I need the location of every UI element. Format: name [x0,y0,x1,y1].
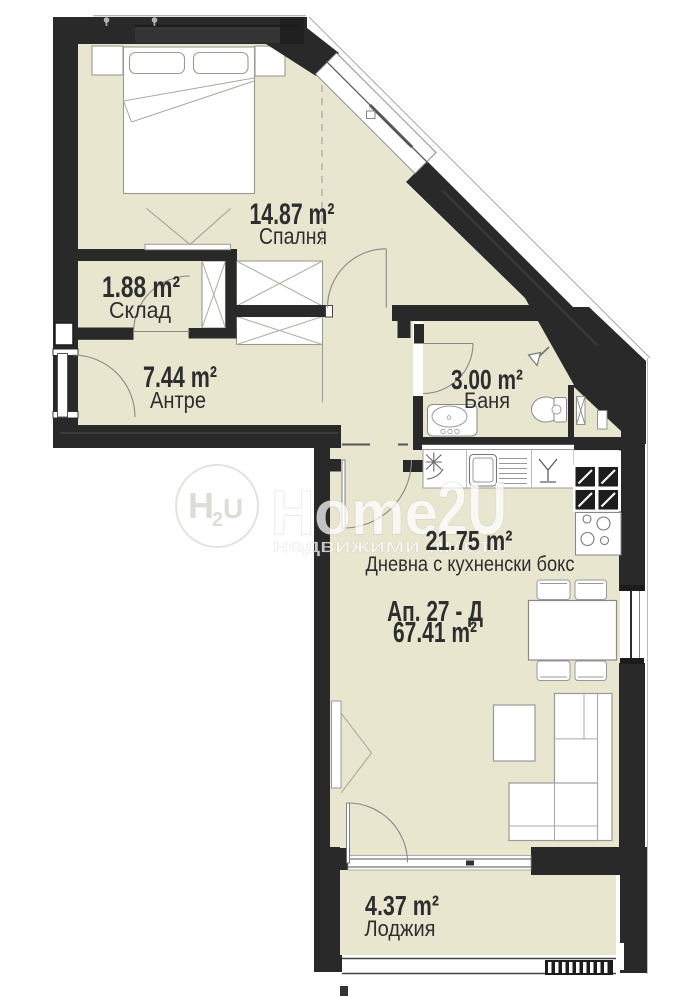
svg-text:Антре: Антре [150,387,206,413]
svg-text:Баня: Баня [464,388,510,413]
svg-text:Лоджия: Лоджия [365,916,436,941]
svg-text:21.75 m²: 21.75 m² [426,525,513,556]
svg-text:67.41 m²: 67.41 m² [393,617,477,649]
svg-text:Дневна с кухненски бокс: Дневна с кухненски бокс [366,553,575,576]
svg-text:2: 2 [212,509,223,531]
svg-text:Склад: Склад [109,297,172,323]
svg-text:Спалня: Спалня [259,223,327,249]
svg-text:U: U [223,493,243,524]
svg-text:H: H [188,485,214,526]
